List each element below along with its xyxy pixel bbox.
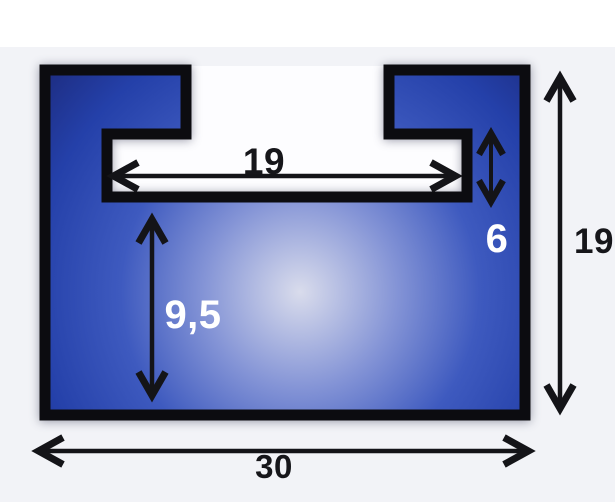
diagram-canvas: 19 6 9,5 19 30 [0,0,615,502]
overall-width-label: 30 [255,448,293,485]
body-depth-label: 9,5 [164,293,221,337]
lip-notch-label: 6 [486,217,509,261]
overall-height-arrow [547,78,574,409]
overall-height-label: 19 [574,222,614,261]
profile-diagram-svg: 19 6 9,5 19 30 [0,0,615,502]
slot-width-label: 19 [243,141,285,182]
